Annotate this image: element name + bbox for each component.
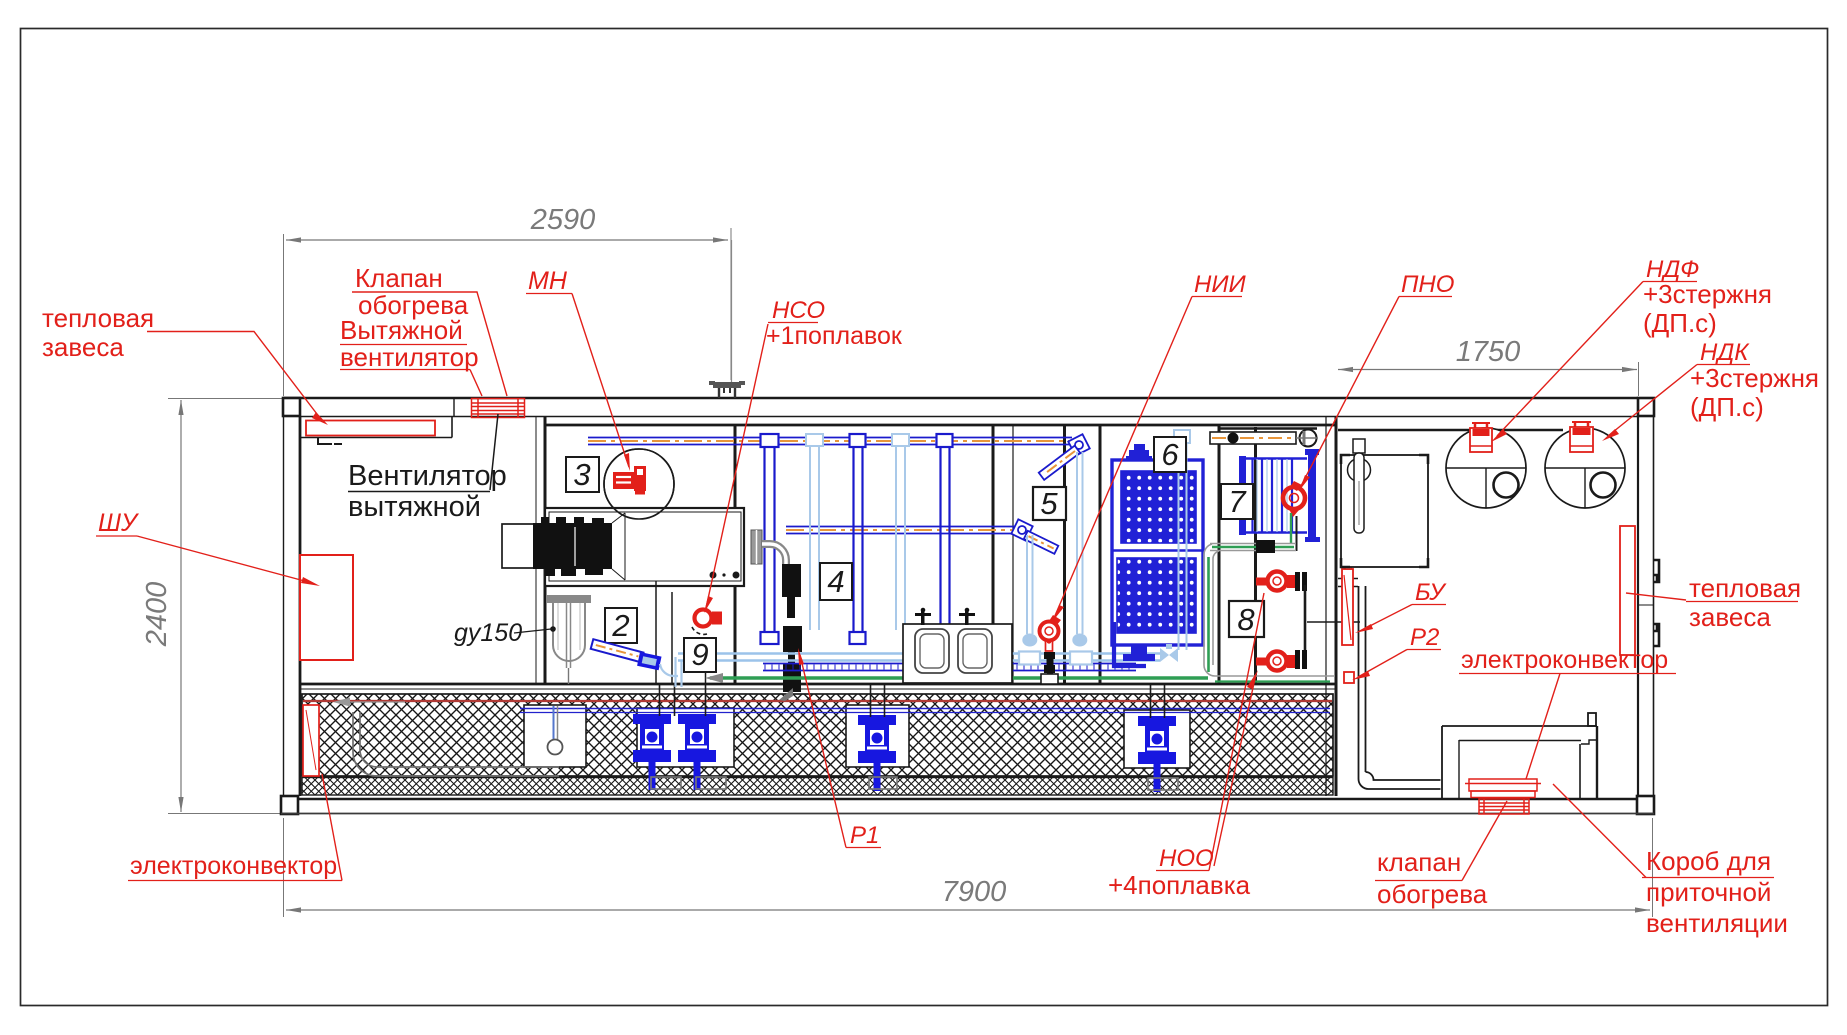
svg-text:gy150: gy150 <box>454 619 522 647</box>
svg-text:электроконвектор: электроконвектор <box>130 852 337 880</box>
svg-text:НДК: НДК <box>1700 339 1750 366</box>
svg-text:завеса: завеса <box>42 332 124 362</box>
svg-text:Р2: Р2 <box>1410 624 1439 651</box>
svg-text:НИИ: НИИ <box>1194 271 1247 298</box>
svg-text:+1поплавок: +1поплавок <box>766 322 903 350</box>
svg-text:+4поплавка: +4поплавка <box>1108 870 1251 900</box>
svg-text:9: 9 <box>691 637 708 672</box>
svg-text:ПНО: ПНО <box>1401 271 1454 298</box>
svg-text:2400: 2400 <box>141 582 173 648</box>
svg-text:завеса: завеса <box>1689 602 1771 632</box>
svg-text:вентиляции: вентиляции <box>1646 908 1788 938</box>
svg-text:НСО: НСО <box>772 297 825 324</box>
svg-text:5: 5 <box>1040 486 1058 521</box>
svg-text:1750: 1750 <box>1456 336 1521 368</box>
svg-text:ШУ: ШУ <box>98 509 140 537</box>
svg-text:вытяжной: вытяжной <box>348 491 481 523</box>
svg-text:Клапан: Клапан <box>355 263 443 293</box>
svg-text:6: 6 <box>1161 437 1179 472</box>
svg-text:+3стержня: +3стержня <box>1690 363 1819 393</box>
svg-text:7900: 7900 <box>942 876 1007 908</box>
svg-text:НОО: НОО <box>1159 845 1214 872</box>
svg-text:Вентилятор: Вентилятор <box>348 460 507 492</box>
svg-text:электроконвектор: электроконвектор <box>1461 646 1668 674</box>
svg-text:8: 8 <box>1237 602 1255 637</box>
svg-text:тепловая: тепловая <box>1689 573 1801 603</box>
svg-text:обогрева: обогрева <box>1377 879 1488 909</box>
svg-text:7: 7 <box>1228 484 1247 519</box>
svg-text:2: 2 <box>611 608 629 643</box>
svg-text:приточной: приточной <box>1646 877 1771 907</box>
svg-text:вентилятор: вентилятор <box>340 342 479 372</box>
svg-text:Вытяжной: Вытяжной <box>340 315 463 345</box>
svg-text:4: 4 <box>827 564 844 599</box>
svg-text:МН: МН <box>528 267 568 295</box>
svg-text:2590: 2590 <box>530 204 596 236</box>
svg-text:3: 3 <box>573 457 590 492</box>
svg-text:Р1: Р1 <box>850 822 879 849</box>
svg-text:БУ: БУ <box>1415 579 1447 606</box>
svg-text:+3стержня: +3стержня <box>1643 279 1772 309</box>
svg-text:(ДП.с): (ДП.с) <box>1690 392 1764 422</box>
svg-text:клапан: клапан <box>1377 847 1461 877</box>
svg-text:Короб для: Короб для <box>1646 846 1771 876</box>
svg-text:(ДП.с): (ДП.с) <box>1643 308 1717 338</box>
svg-text:тепловая: тепловая <box>42 303 154 333</box>
